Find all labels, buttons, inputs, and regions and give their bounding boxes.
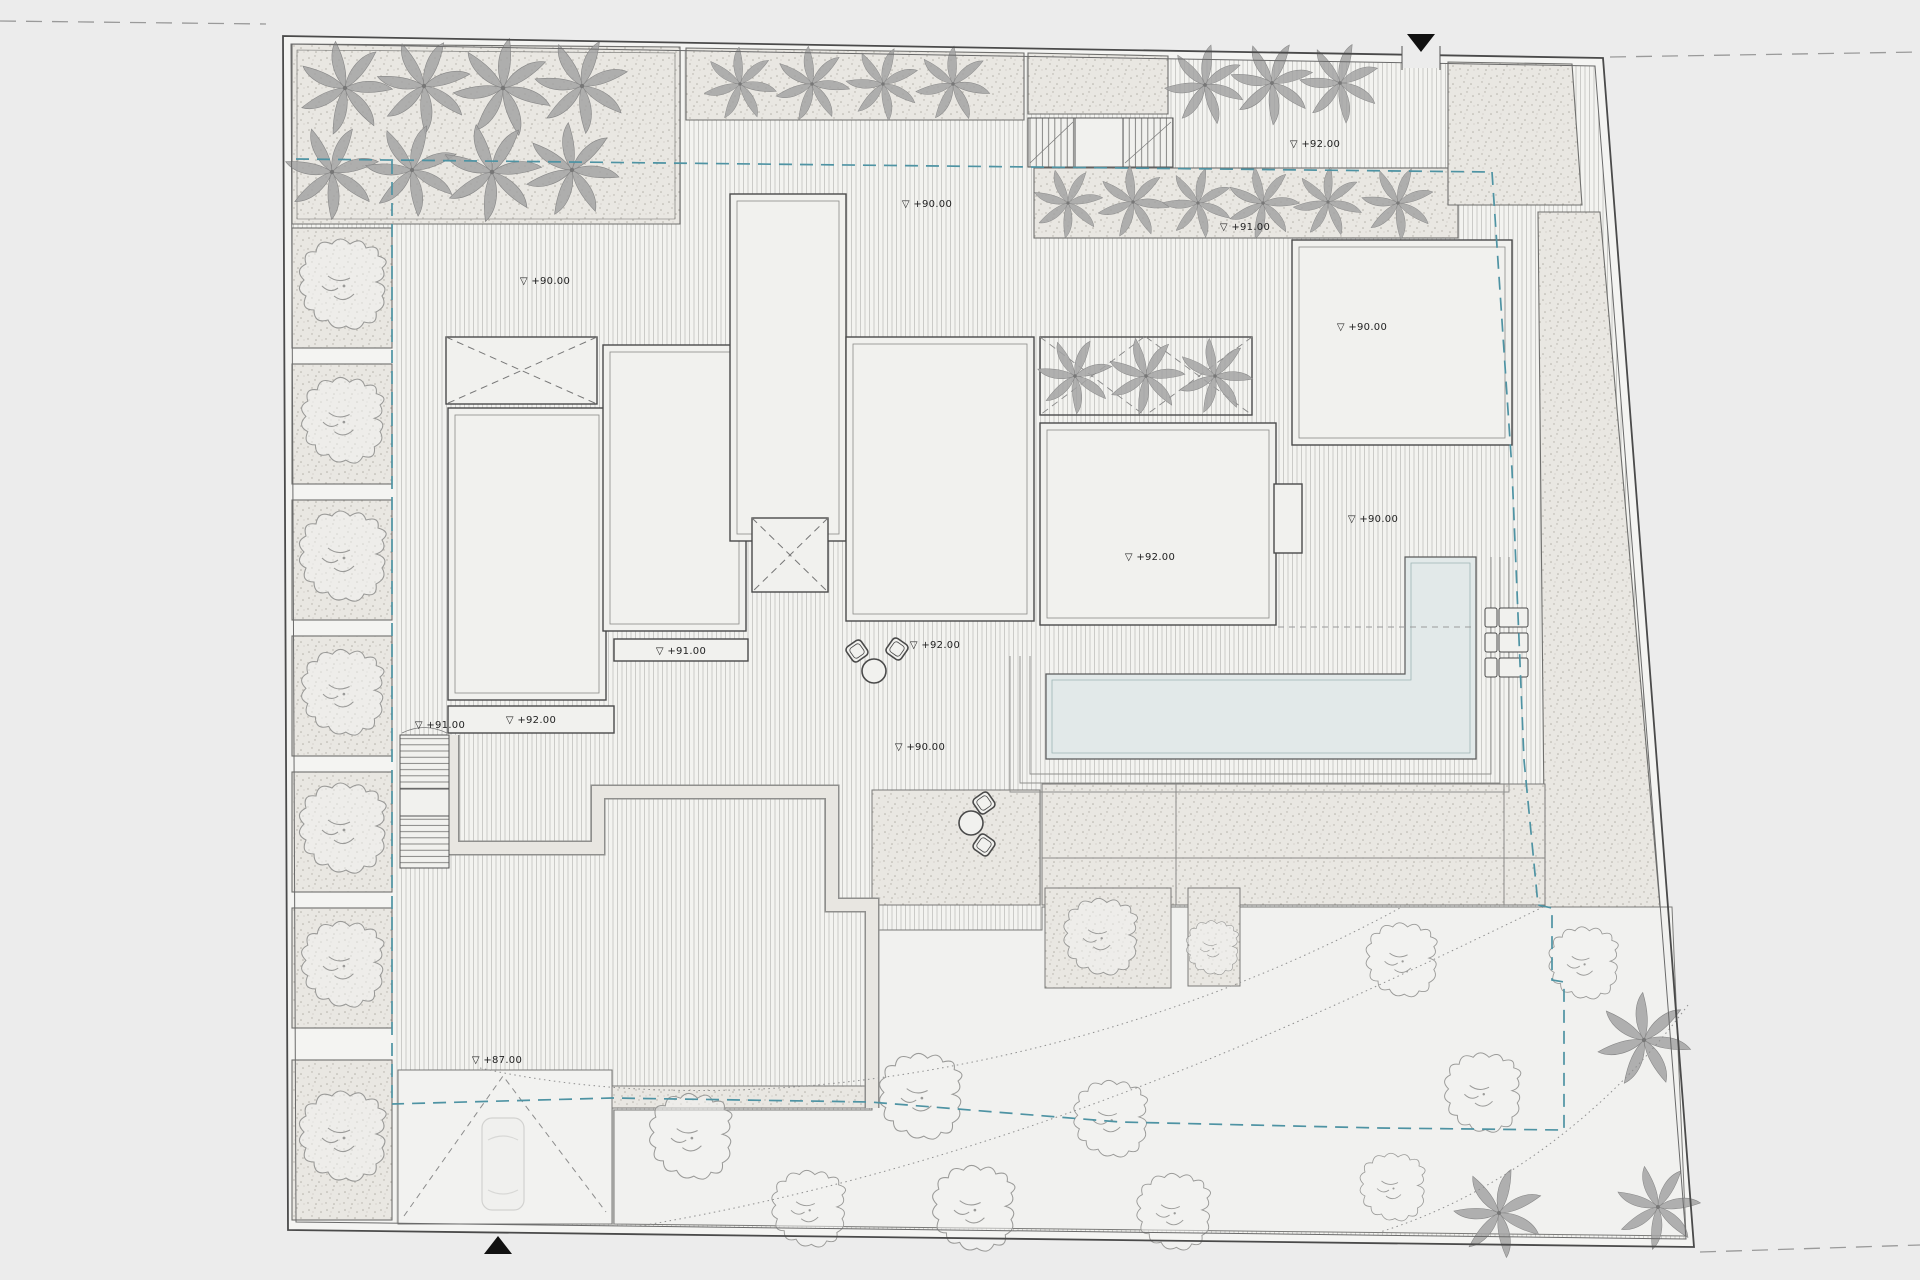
elevation-marker: ▽ +92.00: [1125, 552, 1175, 563]
round-table: [959, 811, 983, 835]
sun-lounger: [1485, 658, 1528, 677]
east-roof-tab: [1274, 484, 1302, 553]
deck-edge-planter: [612, 1086, 872, 1108]
elevation-marker: ▽ +90.00: [520, 276, 570, 287]
stair-top-bed: [1028, 53, 1168, 114]
elevation-marker: ▽ +91.00: [1220, 222, 1270, 233]
sun-lounger: [1485, 608, 1528, 627]
site-plan-canvas: Site Plan — Roof Level: [0, 0, 1920, 1280]
elevation-marker: ▽ +90.00: [895, 742, 945, 753]
round-table: [862, 659, 886, 683]
north-stair: [1028, 118, 1173, 167]
west-stair: [400, 728, 449, 869]
elevation-marker: ▽ +90.00: [1337, 322, 1387, 333]
elevation-marker: ▽ +90.00: [902, 199, 952, 210]
northeast-corner-bed: [1448, 62, 1582, 205]
driveway: [398, 1070, 612, 1224]
tall-roof: [730, 194, 846, 541]
elevation-marker: ▽ +91.00: [656, 646, 706, 657]
northeast-roof: [1292, 240, 1512, 445]
car-outline: [482, 1118, 524, 1210]
elevation-marker: ▽ +92.00: [1290, 139, 1340, 150]
center-roof: [846, 337, 1034, 621]
elevation-marker: ▽ +90.00: [1348, 514, 1398, 525]
east-roof: [1040, 423, 1276, 625]
elevation-marker: ▽ +92.00: [506, 715, 556, 726]
west-roof: [448, 408, 606, 700]
elevation-marker: ▽ +92.00: [910, 640, 960, 651]
sun-lounger: [1485, 633, 1528, 652]
middle-roof: [603, 345, 746, 631]
elevation-marker: ▽ +91.00: [415, 720, 465, 731]
drawing-sheet: Site Plan — Roof Level: [0, 0, 1920, 1280]
elevation-marker: ▽ +87.00: [472, 1055, 522, 1066]
